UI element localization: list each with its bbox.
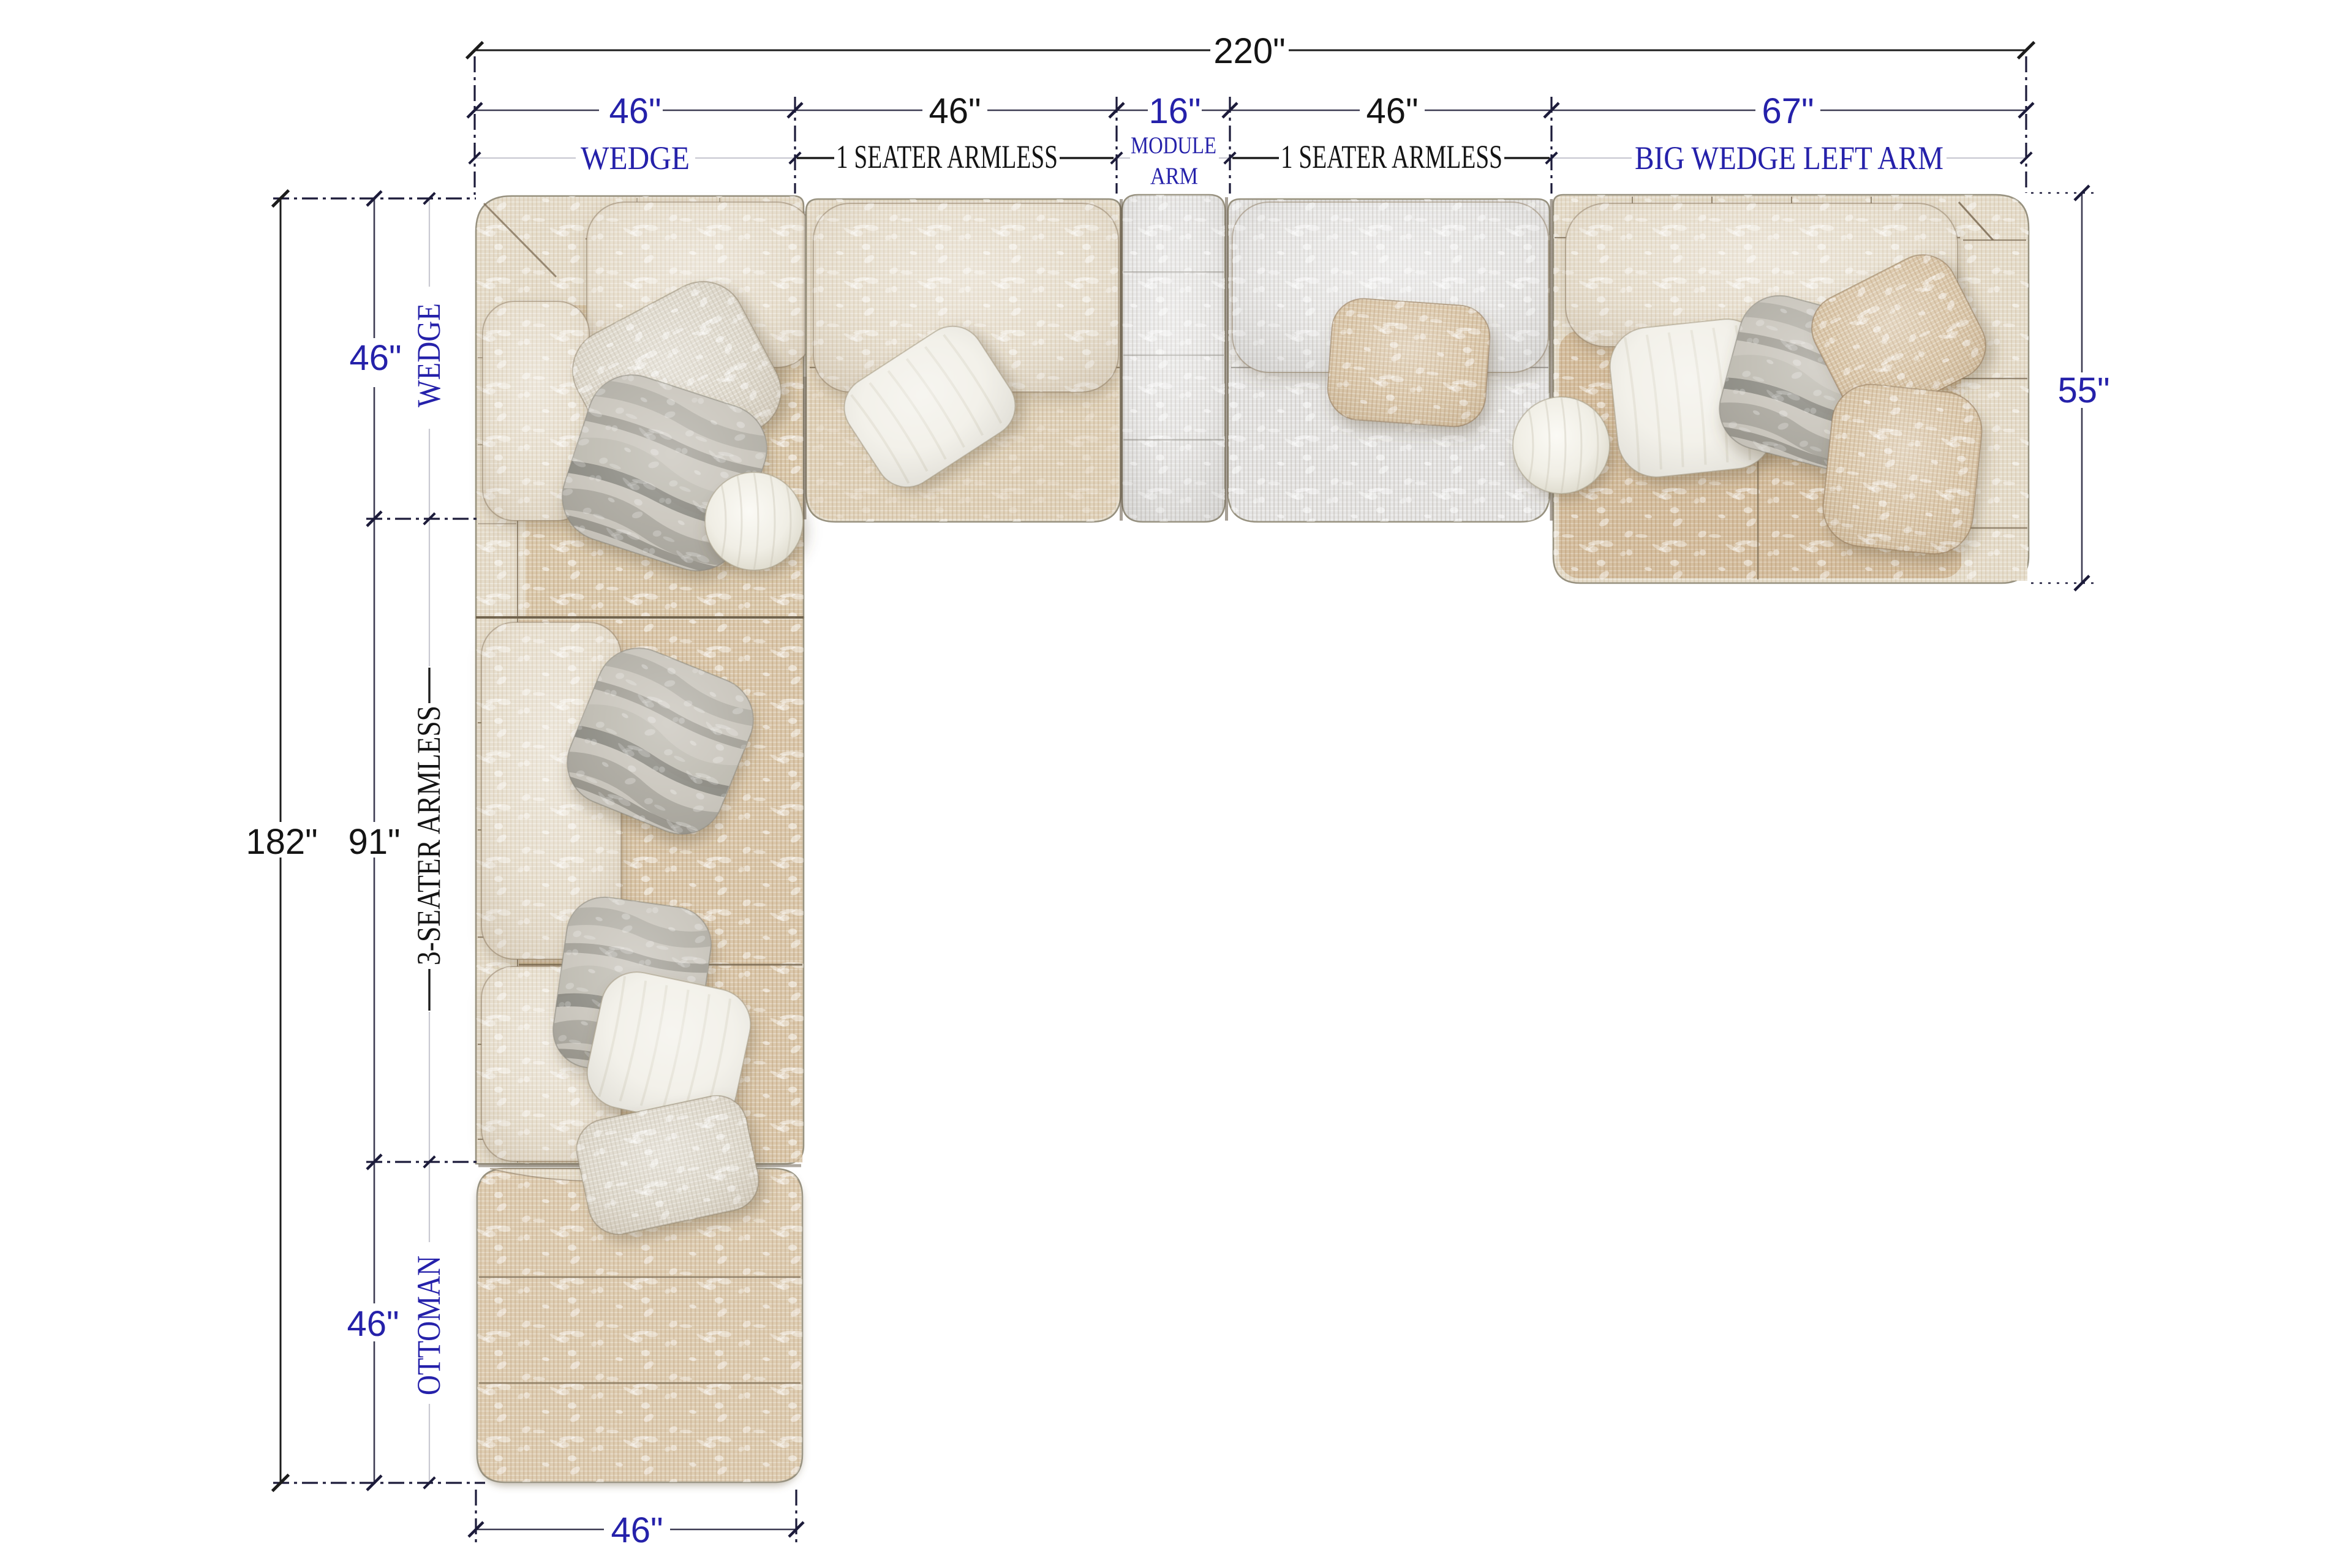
svg-text:3-SEATER ARMLESS: 3-SEATER ARMLESS [410,706,447,965]
svg-text:182": 182" [246,822,317,862]
svg-text:55": 55" [2057,371,2109,410]
svg-text:WEDGE: WEDGE [581,140,690,176]
svg-text:46": 46" [609,91,661,131]
svg-text:220": 220" [1213,31,1285,71]
svg-text:46": 46" [1366,91,1418,131]
svg-text:ARM: ARM [1150,163,1198,189]
svg-text:MODULE: MODULE [1131,132,1216,159]
svg-text:BIG WEDGE LEFT ARM: BIG WEDGE LEFT ARM [1635,140,1943,176]
svg-text:67": 67" [1762,91,1814,131]
svg-text:46": 46" [347,1304,399,1344]
svg-text:46": 46" [611,1510,663,1550]
svg-text:WEDGE: WEDGE [410,303,447,407]
svg-text:46": 46" [929,91,981,131]
svg-text:46": 46" [349,338,401,378]
svg-text:1 SEATER ARMLESS: 1 SEATER ARMLESS [836,138,1058,175]
svg-text:1 SEATER ARMLESS: 1 SEATER ARMLESS [1281,138,1502,175]
svg-text:OTTOMAN: OTTOMAN [410,1256,447,1395]
svg-text:16": 16" [1148,91,1200,131]
svg-text:91": 91" [348,822,400,862]
